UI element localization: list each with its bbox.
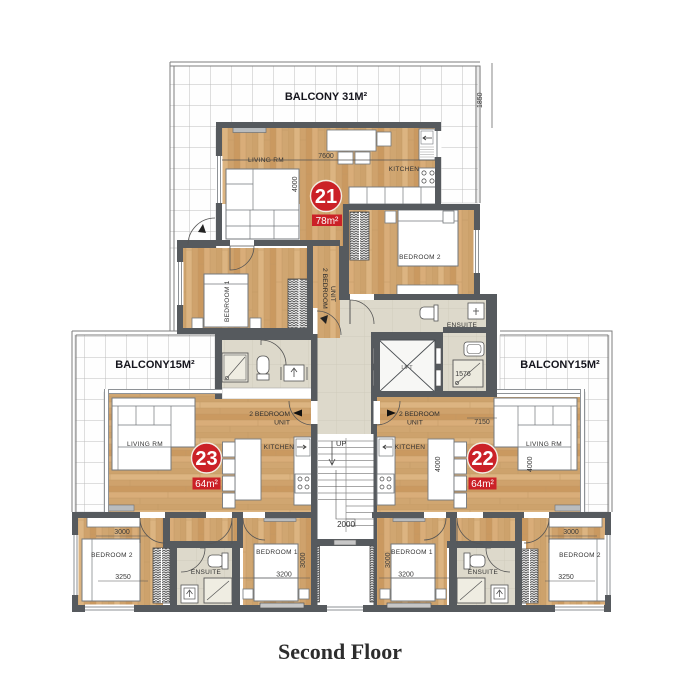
svg-text:LIFT: LIFT bbox=[401, 365, 413, 371]
svg-text:2 BEDROOM: 2 BEDROOM bbox=[399, 411, 440, 418]
svg-text:UNIT: UNIT bbox=[407, 420, 423, 427]
svg-text:BEDROOM 1: BEDROOM 1 bbox=[224, 280, 231, 322]
svg-text:3250: 3250 bbox=[558, 574, 574, 581]
svg-text:7600: 7600 bbox=[318, 153, 334, 160]
svg-text:LIVING RM: LIVING RM bbox=[127, 441, 163, 448]
svg-text:KITCHEN: KITCHEN bbox=[395, 444, 426, 451]
svg-text:2 BEDROOM: 2 BEDROOM bbox=[249, 411, 290, 418]
svg-text:UNIT: UNIT bbox=[329, 286, 336, 302]
svg-text:ENSUITE: ENSUITE bbox=[447, 322, 478, 329]
svg-text:ENSUITE: ENSUITE bbox=[191, 569, 222, 576]
svg-text:3000: 3000 bbox=[563, 529, 579, 536]
svg-text:Second Floor: Second Floor bbox=[278, 639, 402, 664]
svg-text:2 BEDROOM: 2 BEDROOM bbox=[321, 268, 328, 309]
svg-text:1850: 1850 bbox=[477, 92, 484, 108]
svg-text:BEDROOM 2: BEDROOM 2 bbox=[399, 254, 441, 261]
svg-text:BEDROOM 2: BEDROOM 2 bbox=[559, 552, 601, 559]
svg-text:64m²: 64m² bbox=[195, 479, 218, 490]
svg-text:UP: UP bbox=[336, 439, 346, 448]
svg-text:3200: 3200 bbox=[398, 572, 414, 579]
svg-text:BEDROOM 2: BEDROOM 2 bbox=[91, 552, 133, 559]
svg-text:4000: 4000 bbox=[527, 456, 534, 472]
svg-text:LIVING RM: LIVING RM bbox=[526, 441, 562, 448]
svg-text:64m²: 64m² bbox=[471, 479, 494, 490]
svg-text:UNIT: UNIT bbox=[274, 420, 290, 427]
svg-text:4000: 4000 bbox=[292, 176, 299, 192]
svg-text:ENSUITE: ENSUITE bbox=[468, 569, 499, 576]
svg-text:3000: 3000 bbox=[114, 529, 130, 536]
svg-text:BEDROOM 1: BEDROOM 1 bbox=[391, 549, 433, 556]
svg-text:3000: 3000 bbox=[300, 552, 307, 568]
svg-text:KITCHEN: KITCHEN bbox=[264, 444, 295, 451]
svg-text:BEDROOM 1: BEDROOM 1 bbox=[256, 549, 298, 556]
svg-text:21: 21 bbox=[315, 186, 337, 208]
svg-text:KITCHEN: KITCHEN bbox=[389, 166, 420, 173]
svg-text:3000: 3000 bbox=[385, 552, 392, 568]
svg-text:23: 23 bbox=[195, 448, 217, 470]
svg-text:BALCONY 31M²: BALCONY 31M² bbox=[285, 91, 368, 103]
svg-text:3250: 3250 bbox=[115, 574, 131, 581]
svg-text:LIVING RM: LIVING RM bbox=[248, 157, 284, 164]
svg-text:7150: 7150 bbox=[474, 419, 490, 426]
svg-text:4000: 4000 bbox=[435, 456, 442, 472]
svg-text:22: 22 bbox=[471, 448, 493, 470]
svg-text:2000: 2000 bbox=[337, 520, 355, 529]
svg-text:BALCONY15M²: BALCONY15M² bbox=[115, 359, 195, 371]
svg-text:78m²: 78m² bbox=[316, 216, 339, 227]
svg-text:BALCONY15M²: BALCONY15M² bbox=[520, 359, 600, 371]
svg-text:3200: 3200 bbox=[276, 572, 292, 579]
svg-text:1576: 1576 bbox=[455, 371, 471, 378]
